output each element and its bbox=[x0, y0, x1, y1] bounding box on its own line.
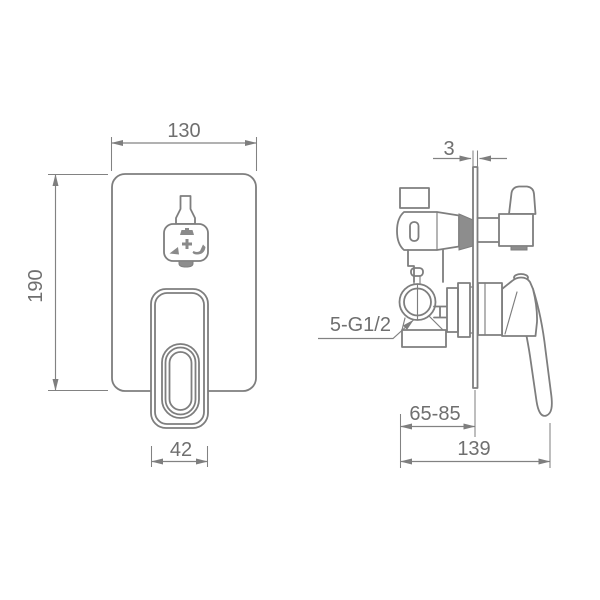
total-depth-label: 139 bbox=[457, 438, 490, 460]
lower-body-block bbox=[402, 330, 446, 347]
mixer-cartridge-flange bbox=[458, 283, 470, 337]
knob-bottom-tab bbox=[511, 246, 527, 250]
handle-width-label: 42 bbox=[170, 439, 192, 461]
port-stem-cap bbox=[411, 268, 423, 276]
inlet-port-top bbox=[400, 188, 429, 208]
dimension-front-width: 130 bbox=[112, 120, 257, 171]
plate-thickness-label: 3 bbox=[443, 138, 454, 160]
mixer-cartridge bbox=[447, 288, 458, 332]
dimension-front-height: 190 bbox=[25, 175, 108, 391]
dimension-plate-thickness: 3 bbox=[433, 138, 507, 167]
thread-label: 5-G1/2 bbox=[330, 314, 391, 336]
front-width-label: 130 bbox=[167, 120, 200, 142]
handle-front bbox=[151, 289, 208, 428]
callout-thread: 5-G1/2 bbox=[318, 314, 414, 339]
technical-drawing-canvas: 130 190 42 bbox=[0, 0, 600, 600]
knob-top bbox=[509, 187, 536, 215]
handle-escutcheon-side bbox=[478, 283, 502, 335]
drawing-svg: 130 190 42 bbox=[0, 0, 600, 600]
diverter-bottom-tab bbox=[179, 261, 193, 267]
install-depth-label: 65-85 bbox=[409, 403, 460, 425]
body-neck bbox=[408, 250, 443, 282]
adjust-screw-icon bbox=[434, 307, 446, 318]
wall-plate-side bbox=[473, 167, 478, 388]
mixer-handle-side bbox=[478, 274, 552, 416]
side-view: 3 5-G1/2 65-85 139 bbox=[318, 138, 552, 468]
front-height-label: 190 bbox=[25, 269, 47, 302]
diverter-cartridge-housing bbox=[397, 212, 459, 250]
valve-body-side bbox=[397, 188, 473, 347]
dimension-handle-width: 42 bbox=[152, 439, 208, 467]
knob-stem bbox=[478, 218, 500, 242]
diverter-knob-side bbox=[478, 187, 536, 251]
knob-body bbox=[499, 214, 533, 246]
front-view: 130 190 42 bbox=[25, 120, 257, 467]
diverter-coupling bbox=[459, 214, 473, 250]
